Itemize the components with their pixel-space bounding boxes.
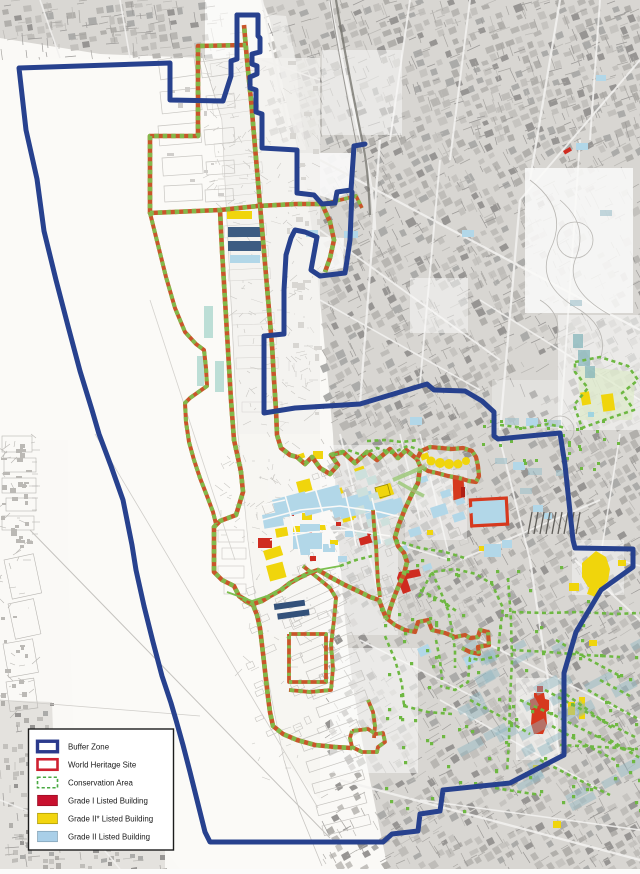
svg-text:Grade II* Listed Building: Grade II* Listed Building [68,815,153,824]
svg-text:Conservation Area: Conservation Area [68,779,134,788]
svg-text:Grade I Listed Building: Grade I Listed Building [68,797,148,806]
svg-text:Buffer Zone: Buffer Zone [68,743,110,752]
svg-text:Grade II Listed Building: Grade II Listed Building [68,833,150,842]
svg-text:World Heritage Site: World Heritage Site [68,761,137,770]
